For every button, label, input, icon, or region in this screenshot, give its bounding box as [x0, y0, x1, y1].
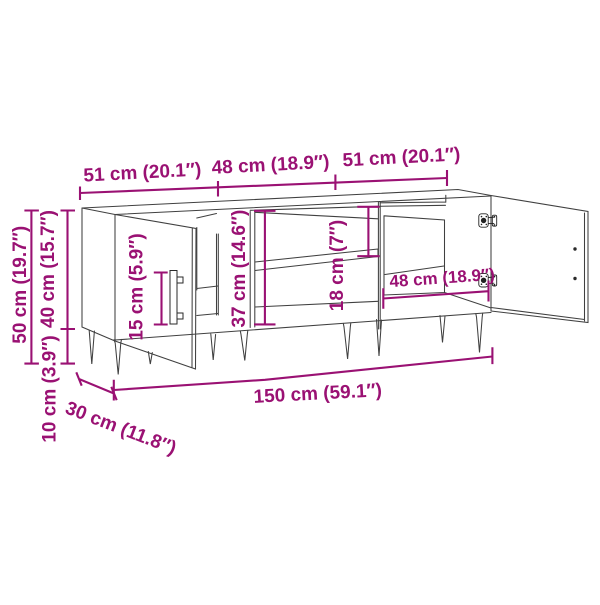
- svg-text:15 cm (5.9″): 15 cm (5.9″): [127, 233, 148, 340]
- svg-text:51 cm (20.1″): 51 cm (20.1″): [83, 159, 202, 186]
- svg-text:40 cm (15.7″): 40 cm (15.7″): [38, 210, 59, 328]
- svg-text:48 cm (18.9″): 48 cm (18.9″): [211, 152, 330, 179]
- svg-text:50 cm (19.7″): 50 cm (19.7″): [10, 226, 31, 344]
- svg-text:37 cm (14.6″): 37 cm (14.6″): [229, 210, 250, 328]
- svg-text:51 cm (20.1″): 51 cm (20.1″): [342, 144, 461, 171]
- svg-text:10 cm (3.9″): 10 cm (3.9″): [40, 335, 61, 442]
- svg-text:18 cm (7″): 18 cm (7″): [327, 220, 348, 311]
- svg-text:150 cm (59.1″): 150 cm (59.1″): [253, 380, 382, 408]
- svg-text:30 cm (11.8″): 30 cm (11.8″): [62, 398, 179, 459]
- svg-text:48 cm (18.9″): 48 cm (18.9″): [389, 265, 496, 291]
